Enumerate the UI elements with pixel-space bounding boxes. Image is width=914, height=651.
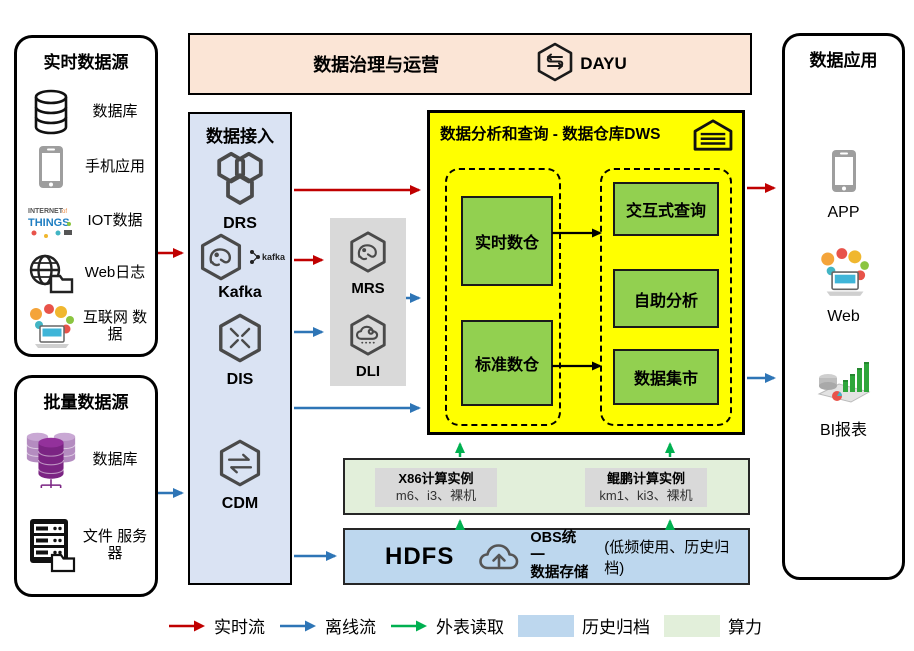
compute-instance-x86: X86计算实例 m6、i3、裸机	[375, 468, 497, 507]
source-item-iot: INTERNET of THINGS IOT数据	[23, 196, 151, 246]
module-standard-warehouse: 标准数仓	[461, 320, 553, 406]
module-self-analysis: 自助分析	[613, 269, 719, 328]
module-data-mart: 数据集市	[613, 349, 719, 405]
access-item-cdm: CDM	[190, 438, 290, 513]
web-log-icon	[23, 252, 79, 294]
source-label: 数据库	[79, 103, 151, 120]
instance-spec: km1、ki3、裸机	[599, 488, 692, 504]
processing-item-dli: DLI	[330, 313, 406, 380]
module-interactive-query: 交互式查询	[613, 182, 719, 236]
access-item-dis: DIS	[190, 312, 290, 389]
obs-title-line2: 数据存储	[530, 565, 590, 582]
purple-database-icon	[23, 426, 79, 494]
processing-panel: MRS DLI	[330, 218, 406, 386]
storage-panel: HDFS OBS统一 数据存储 (低频使用、历史归档)	[343, 528, 750, 585]
processing-item-mrs: MRS	[330, 230, 406, 297]
app-label: APP	[827, 204, 859, 222]
legend-item-offline: 离线流	[279, 613, 376, 638]
access-item-drs: DRS	[190, 150, 290, 233]
legend-label: 外表读取	[436, 613, 504, 638]
source-item-internet: 互联网 数据	[23, 300, 151, 352]
instance-name: 鲲鹏计算实例	[607, 471, 685, 487]
legend-label: 离线流	[325, 613, 376, 638]
realtime-sources-title: 实时数据源	[17, 38, 155, 73]
dayu-icon	[534, 41, 576, 88]
database-icon	[23, 88, 79, 136]
warehouse-icon	[692, 118, 734, 157]
iot-icon: INTERNET of THINGS	[23, 199, 79, 243]
dws-panel: 数据分析和查询 - 数据仓库DWS 实时数仓 标准数仓 交互式查询 自助分析 数…	[427, 110, 745, 435]
source-item-batch-database: 数据库	[23, 422, 151, 498]
app-item-web: Web	[785, 246, 902, 326]
web-icon	[816, 246, 872, 303]
svg-text:of: of	[62, 209, 67, 215]
svg-text:THINGS: THINGS	[28, 217, 70, 229]
legend-label: 历史归档	[582, 613, 650, 638]
legend-item-archive: 历史归档	[518, 613, 650, 638]
realtime-sources-panel: 实时数据源 数据库 手机应用 INTERNET	[14, 35, 158, 357]
warehouse-group: 实时数仓 标准数仓	[445, 168, 561, 426]
bi-report-icon	[815, 356, 873, 411]
internet-icon	[23, 302, 79, 350]
access-label: DRS	[223, 215, 257, 233]
svg-text:INTERNET: INTERNET	[28, 208, 64, 215]
obs-cloud-upload-icon	[476, 538, 524, 576]
legend-item-compute: 算力	[664, 613, 762, 638]
source-item-weblog: Web日志	[23, 248, 151, 298]
mrs-icon	[344, 230, 392, 279]
module-realtime-warehouse: 实时数仓	[461, 196, 553, 286]
blue-swatch	[518, 615, 574, 637]
source-label: IOT数据	[79, 212, 151, 229]
kafka-logo: kafka	[249, 249, 285, 265]
legend-label: 实时流	[214, 613, 265, 638]
instance-name: X86计算实例	[398, 471, 473, 487]
access-item-kafka: kafka Kafka	[190, 232, 290, 302]
dis-icon	[212, 312, 268, 369]
source-label: 手机应用	[79, 158, 151, 175]
data-apps-panel: 数据应用 APP Web	[782, 33, 905, 580]
green-arrow-icon	[390, 619, 428, 633]
app-item-app: APP	[785, 148, 902, 222]
dayu-label: DAYU	[580, 54, 627, 74]
dws-title: 数据分析和查询 - 数据仓库DWS	[440, 122, 660, 144]
access-label: Kafka	[218, 284, 262, 302]
architecture-diagram: 实时数据源 数据库 手机应用 INTERNET	[0, 0, 914, 651]
source-item-database: 数据库	[23, 86, 151, 138]
app-label: BI报表	[820, 416, 867, 440]
compute-instance-kunpeng: 鲲鹏计算实例 km1、ki3、裸机	[585, 468, 707, 507]
app-phone-icon	[829, 148, 859, 199]
batch-sources-panel: 批量数据源 数据库	[14, 375, 158, 597]
phone-icon	[23, 144, 79, 190]
source-label: 互联网 数据	[79, 309, 151, 344]
app-label: Web	[827, 308, 860, 326]
legend-label: 算力	[728, 613, 762, 638]
storage-note: (低频使用、历史归档)	[604, 536, 748, 578]
legend: 实时流 离线流 外表读取 历史归档 算力	[168, 613, 762, 638]
file-server-icon	[23, 517, 79, 573]
instance-spec: m6、i3、裸机	[396, 488, 476, 504]
compute-panel: X86计算实例 m6、i3、裸机 鲲鹏计算实例 km1、ki3、裸机	[343, 458, 750, 515]
governance-title: 数据治理与运营	[313, 51, 439, 77]
blue-arrow-icon	[279, 619, 317, 633]
data-access-panel: 数据接入 DRS kafka	[188, 112, 292, 585]
source-item-file-server: 文件 服务器	[23, 512, 151, 578]
hdfs-label: HDFS	[385, 543, 454, 571]
source-item-mobile: 手机应用	[23, 141, 151, 193]
source-label: Web日志	[79, 264, 151, 281]
app-item-bi: BI报表	[785, 356, 902, 440]
drs-icon	[209, 150, 271, 213]
dayu-product: DAYU	[534, 41, 627, 88]
legend-item-external-read: 外表读取	[390, 613, 504, 638]
data-apps-title: 数据应用	[785, 36, 902, 71]
processing-label: DLI	[356, 363, 380, 380]
access-label: CDM	[222, 495, 258, 513]
source-label: 文件 服务器	[79, 528, 151, 563]
batch-sources-title: 批量数据源	[17, 378, 155, 413]
services-group: 交互式查询 自助分析 数据集市	[600, 168, 732, 426]
dli-icon	[344, 313, 392, 362]
legend-item-realtime: 实时流	[168, 613, 265, 638]
obs-title: OBS统一 数据存储	[530, 530, 590, 582]
source-label: 数据库	[79, 451, 151, 468]
obs-title-line1: OBS统一	[530, 530, 590, 565]
governance-banner: 数据治理与运营 DAYU	[188, 33, 752, 95]
red-arrow-icon	[168, 619, 206, 633]
processing-label: MRS	[351, 280, 384, 297]
data-access-title: 数据接入	[190, 114, 290, 147]
cdm-icon	[213, 438, 267, 493]
access-label: DIS	[227, 371, 254, 389]
green-swatch	[664, 615, 720, 637]
kafka-icon: kafka	[195, 232, 285, 282]
